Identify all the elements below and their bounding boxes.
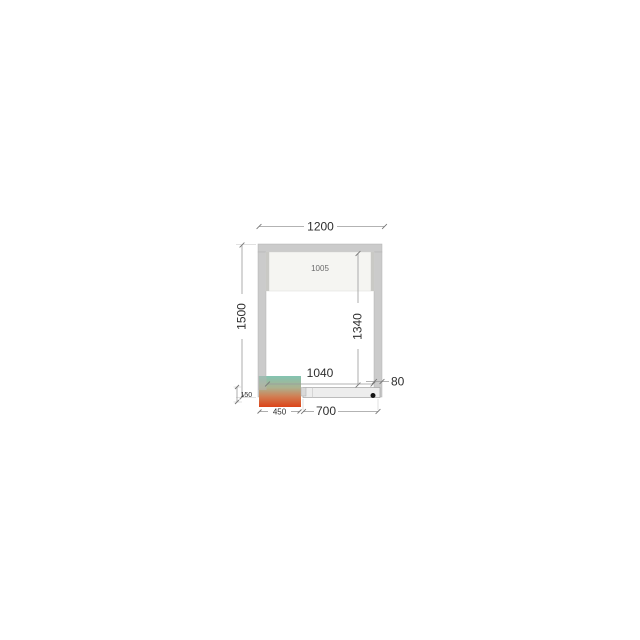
unit-width-label: 450 [273,408,287,417]
outer-width-label: 1200 [307,220,334,234]
dimension-bottom-panel: 700 [301,399,380,418]
wall-corner-overlay [258,376,267,390]
bottom-panel-bar [303,388,380,398]
page-background: 1005 1200 15 [0,0,640,640]
dimension-outer-depth: 1500 [235,243,257,400]
dimension-unit-overhang: 150 [234,385,253,404]
door-panel-left-edge [266,252,269,291]
wall-top [258,244,382,252]
wall-thickness-label: 80 [391,375,405,389]
bottom-panel [303,388,380,399]
door-panel-right-edge [371,252,374,291]
cooling-unit [258,376,306,407]
dimension-unit-width: 450 [258,408,302,417]
dimension-wall-thickness: 80 [366,375,405,389]
wall-left [258,252,266,397]
cold-room-dimension-drawing: 1005 1200 15 [0,0,640,640]
unit-overhang-label: 150 [241,392,253,399]
bottom-panel-label: 700 [316,404,336,418]
outer-depth-label: 1500 [235,303,249,330]
dimension-outer-width: 1200 [257,220,387,234]
pipe-connection-tab [301,388,306,397]
inner-width-label: 1040 [307,366,334,380]
wall-right [374,252,382,397]
door-panel-dimension-label: 1005 [311,264,329,273]
inner-depth-label: 1340 [351,313,365,340]
drain-dot [371,393,376,398]
